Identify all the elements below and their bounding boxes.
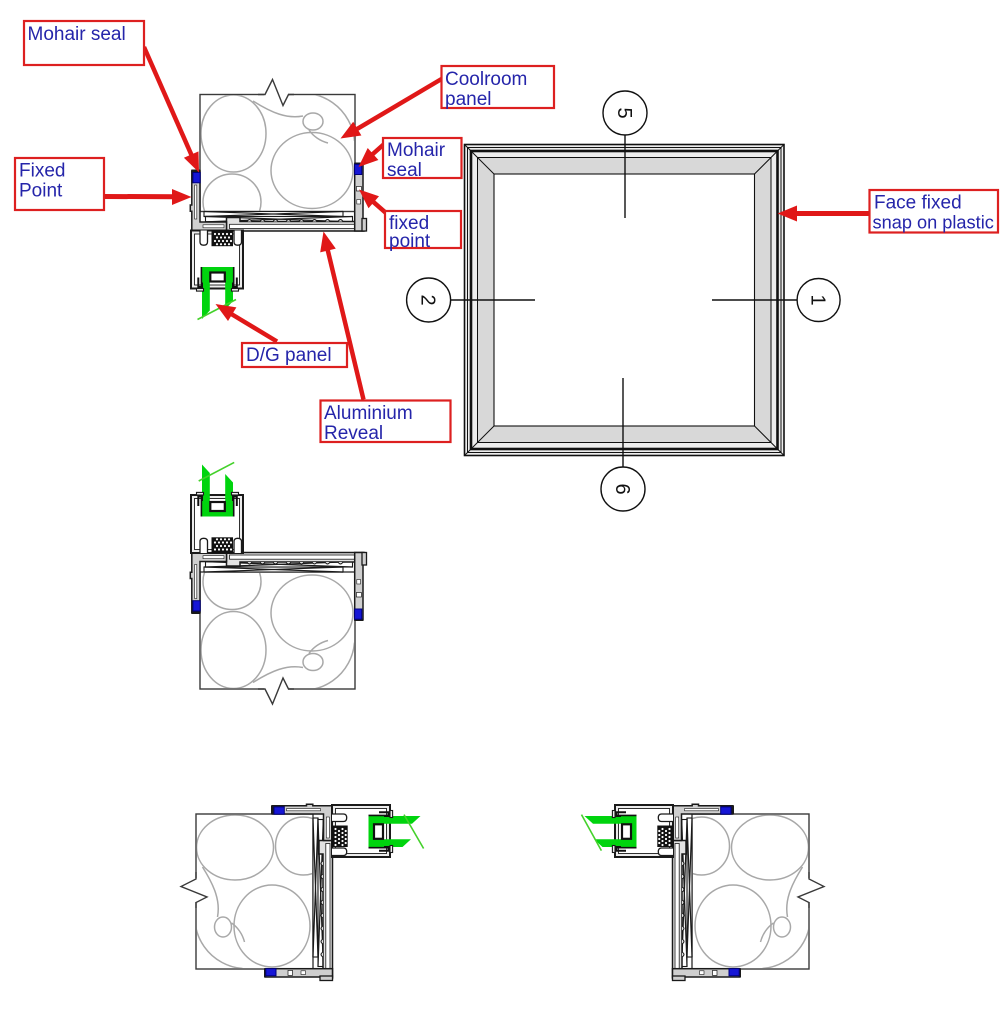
svg-text:Fixed: Fixed [19,161,65,182]
svg-text:Aluminium: Aluminium [324,403,413,424]
svg-text:D/G panel: D/G panel [246,345,332,366]
svg-text:snap on plastic: snap on plastic [873,213,994,233]
svg-text:seal: seal [387,160,422,181]
svg-text:point: point [389,231,431,252]
svg-text:panel: panel [445,89,492,110]
svg-text:Mohair seal: Mohair seal [28,24,126,45]
svg-text:Face fixed: Face fixed [874,193,962,214]
svg-text:2: 2 [417,294,439,305]
svg-text:5: 5 [613,107,635,118]
svg-text:Reveal: Reveal [324,423,383,444]
svg-text:Point: Point [19,181,63,202]
svg-text:6: 6 [611,483,633,494]
svg-text:Mohair: Mohair [387,140,446,161]
svg-text:Coolroom: Coolroom [445,69,527,90]
svg-text:1: 1 [807,294,829,305]
